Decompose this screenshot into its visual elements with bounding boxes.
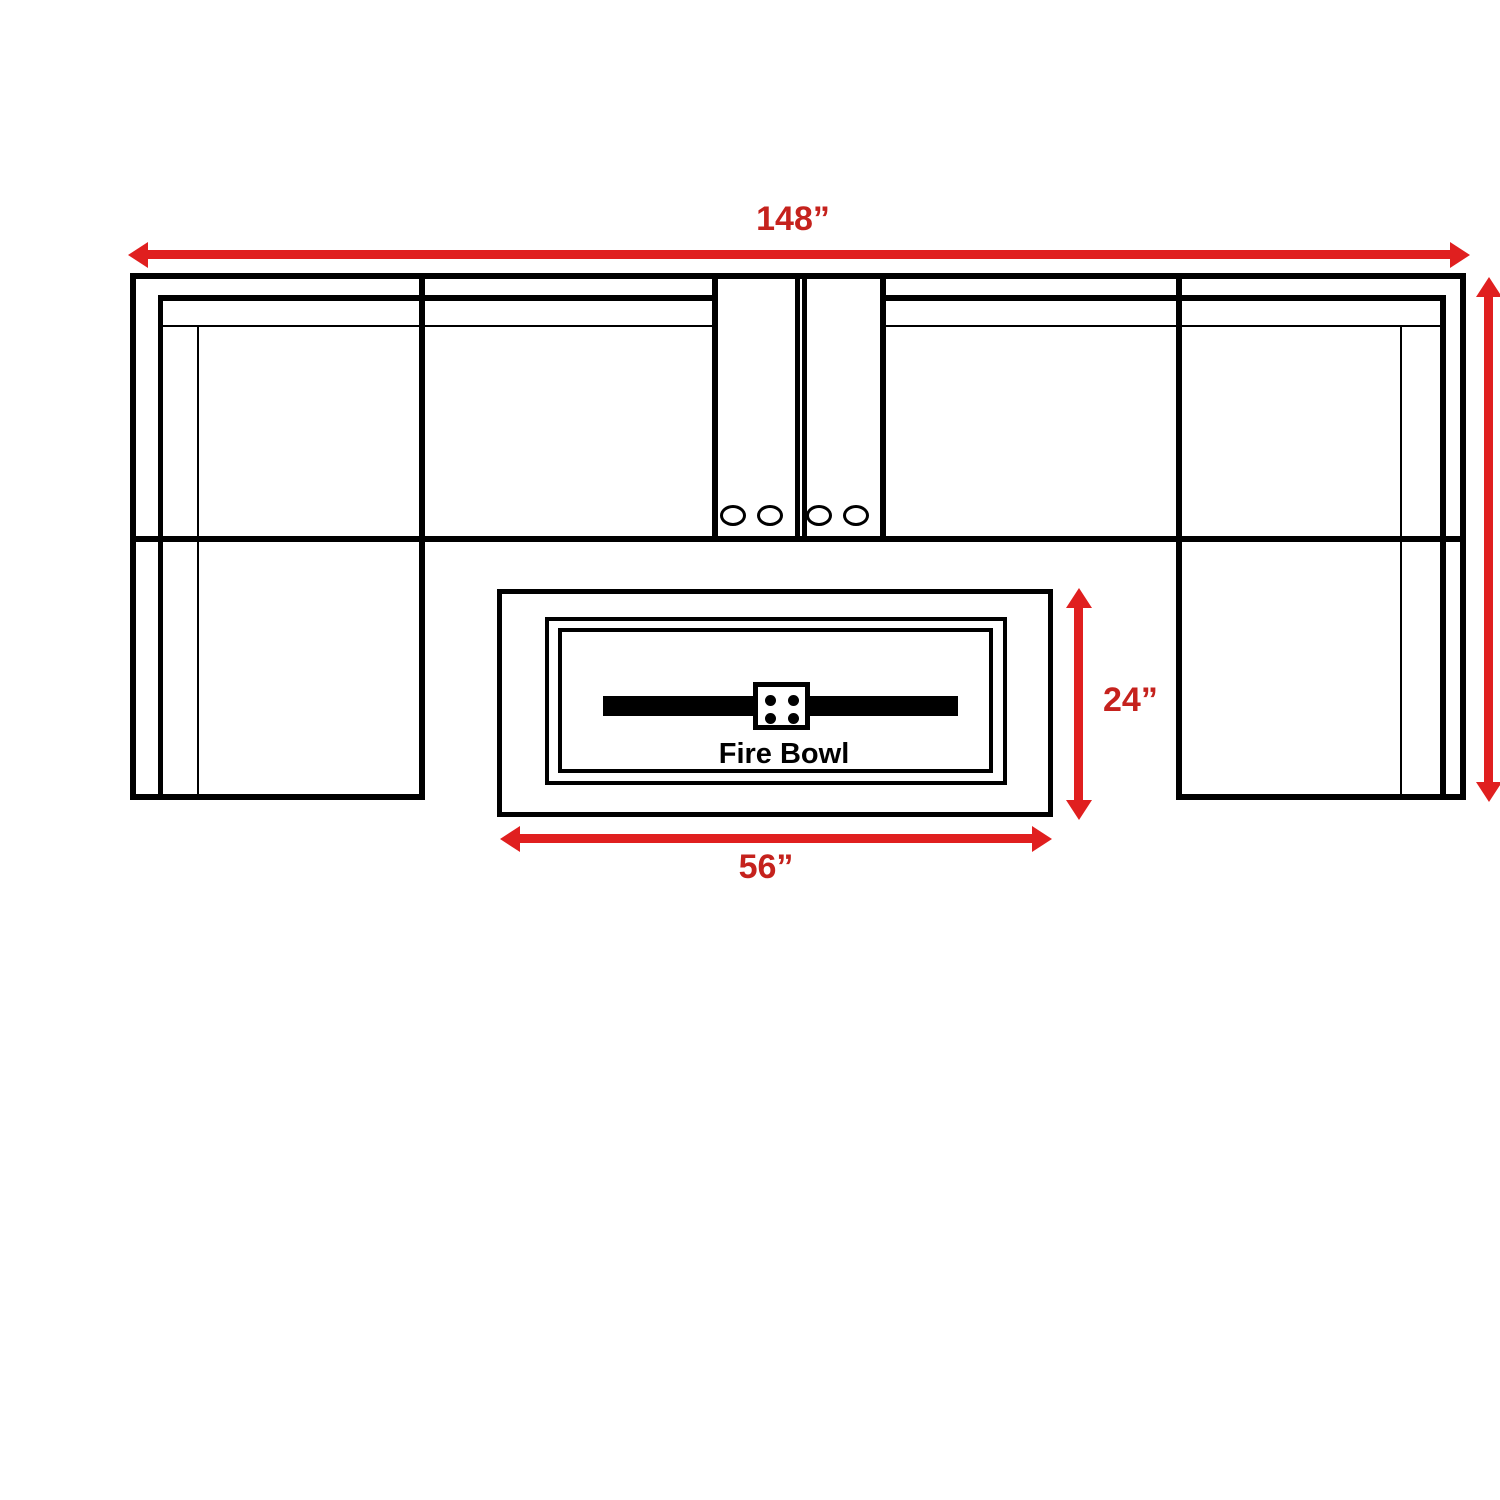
igniter-dot-icon	[765, 713, 776, 724]
igniter-dot-icon	[765, 695, 776, 706]
fire-igniter-box	[753, 682, 810, 730]
back-seam-line-right	[880, 325, 1446, 327]
left-section-divider	[419, 273, 425, 800]
back-cushion-line-right	[880, 295, 1446, 301]
sofa-left-edge	[130, 273, 136, 800]
overall-width-arrow	[148, 250, 1450, 259]
sofa-depth-arrow	[1484, 297, 1493, 782]
igniter-dot-icon	[788, 695, 799, 706]
left-chaise-front-edge	[130, 794, 425, 800]
overall-width-label: 148”	[693, 202, 893, 236]
console-2-right-edge	[880, 273, 886, 542]
sofa-right-edge	[1460, 273, 1466, 800]
fire-table-width-arrow	[520, 834, 1032, 843]
console-2-left-edge	[802, 273, 807, 542]
igniter-dot-icon	[788, 713, 799, 724]
right-section-divider	[1176, 273, 1182, 800]
fire-table-depth-arrow	[1074, 608, 1083, 800]
cup-holder-icon	[757, 505, 783, 526]
left-armrest-inner-line	[158, 295, 163, 800]
fire-bowl-label: Fire Bowl	[659, 740, 909, 769]
left-armrest-seam-line	[197, 325, 199, 800]
fire-table-width-label: 56”	[666, 850, 866, 884]
right-chaise-front-edge	[1176, 794, 1466, 800]
console-1-left-edge	[712, 273, 718, 542]
cup-holder-icon	[806, 505, 832, 526]
cup-holder-icon	[843, 505, 869, 526]
fire-table-depth-label: 24”	[1103, 683, 1158, 717]
cup-holder-icon	[720, 505, 746, 526]
right-armrest-inner-line	[1440, 295, 1446, 800]
right-armrest-seam-line	[1400, 325, 1402, 800]
console-1-right-edge	[795, 273, 800, 542]
back-cushion-line-left	[158, 295, 718, 301]
sectional-dimension-diagram: 148” Fire Bowl 24” 56”	[0, 0, 1500, 1500]
back-seam-line-left	[158, 325, 718, 327]
